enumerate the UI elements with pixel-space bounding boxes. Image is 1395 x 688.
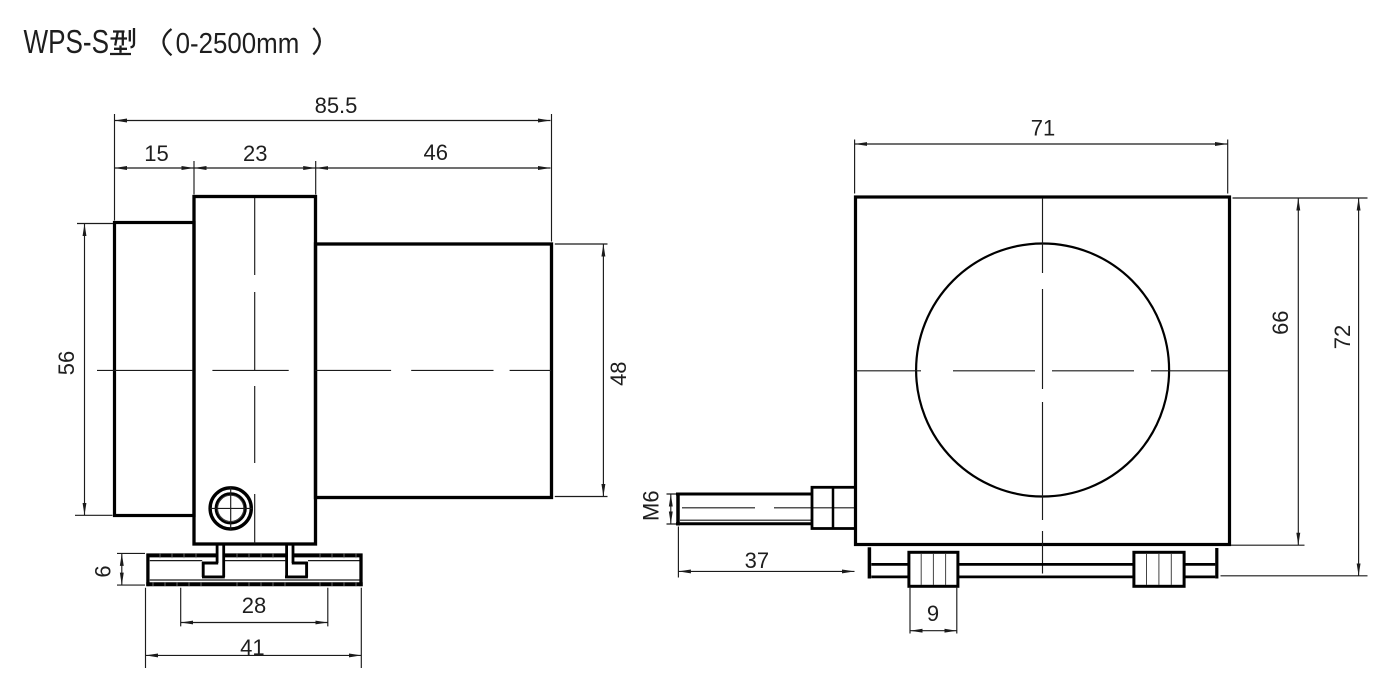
svg-text:66: 66	[1268, 310, 1293, 334]
svg-text:15: 15	[144, 141, 168, 166]
svg-text:23: 23	[243, 141, 267, 166]
svg-text:71: 71	[1031, 116, 1055, 141]
svg-text:46: 46	[424, 140, 448, 165]
svg-text:72: 72	[1330, 325, 1355, 349]
svg-text:41: 41	[240, 635, 264, 660]
svg-text:56: 56	[54, 351, 79, 375]
svg-text:37: 37	[745, 548, 769, 573]
svg-text:48: 48	[606, 361, 631, 385]
svg-text:85.5: 85.5	[315, 93, 358, 118]
svg-text:6: 6	[91, 565, 116, 577]
svg-text:28: 28	[242, 593, 266, 618]
svg-text:M6: M6	[639, 490, 664, 521]
svg-text:0-2500mm: 0-2500mm	[176, 28, 300, 60]
svg-text:9: 9	[927, 601, 939, 626]
svg-text:WPS-S: WPS-S	[24, 24, 110, 61]
